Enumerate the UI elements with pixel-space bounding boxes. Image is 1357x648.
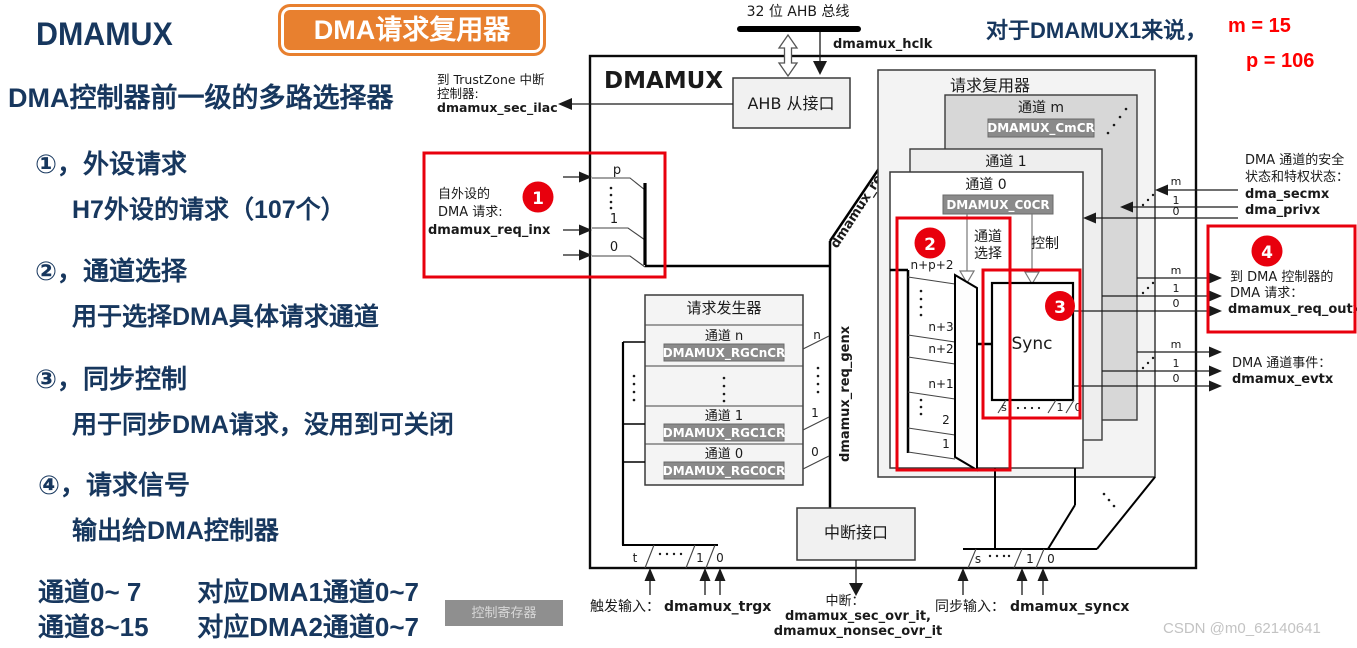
mux-tap-2: 2 [942,413,950,427]
periph-line2: DMA 请求: [438,205,503,220]
ahb-bus-bar [737,26,861,32]
left-arrow-icon [558,98,572,110]
interrupt-signal-1: dmamux_sec_ovr_it, [785,609,931,624]
channel-m-label: 通道 m [1018,100,1064,116]
ahb-bus-label: 32 位 AHB 总线 [747,4,850,20]
trustzone-signal-name: dmamux_sec_ilac [437,100,558,116]
secmx-signal-name: dma_secmx [1245,187,1330,202]
sync-signal-name: dmamux_syncx [1010,599,1129,615]
evt-m: m [1171,338,1182,351]
sync-input-label: 同步输入： [935,599,1005,615]
interrupt-signal-2: dmamux_nonsec_ovr_it [774,624,943,639]
right-arrow-icon [1209,306,1222,317]
hclk-label: dmamux_hclk [833,37,933,52]
annotation-number-1: 1 [532,189,544,209]
reg-rgc1cr: DMAMUX_RGC1CR [663,426,785,441]
trigger-input-label: 触发输入： [590,599,660,615]
gen-out-1: 1 [811,406,819,420]
channel-select-mux [955,275,977,470]
trustzone-line2: 控制器: [437,86,479,101]
up-arrow-icon [700,568,711,581]
out-0: 0 [1173,297,1180,310]
channel-1-label: 通道 1 [985,154,1026,170]
mux-input-1: 1 [610,212,618,227]
right-arrow-icon [1209,366,1222,377]
up-arrow-icon [645,568,656,581]
control-label: 控制 [1031,236,1059,252]
interrupt-label: 中断： [825,594,864,609]
mux-tap-n2: n+2 [928,342,953,356]
sync-label: Sync [1012,334,1053,354]
interrupt-if-label: 中断接口 [824,523,888,542]
out-m: m [1171,264,1182,277]
mux-input-0: 0 [610,240,618,255]
sec-0: 0 [1173,205,1180,218]
security-line1: DMA 通道的安全 [1245,152,1344,168]
trig-tap-0: 0 [716,551,724,565]
right-arrow-icon [1209,291,1222,302]
trigger-signal-name: dmamux_trgx [664,599,771,615]
req-out-line2: DMA 请求： [1230,286,1303,301]
sync-tap-1: 1 [1057,401,1064,414]
up-arrow-icon [1017,568,1028,581]
up-arrow-icon [715,568,726,581]
slide-canvas: DMAMUX DMA请求复用器 DMA控制器前一级的多路选择器 ①，外设请求 H… [0,0,1357,648]
right-arrow-icon [1209,347,1222,358]
up-arrow-icon [1038,568,1049,581]
ahb-slave-label: AHB 从接口 [747,94,834,113]
ahb-slave-interface: AHB 从接口 [733,78,850,128]
dmamux-block-title: DMAMUX [604,68,723,94]
request-generator-title: 请求发生器 [686,299,761,317]
up-arrow-icon [958,568,969,581]
trig-tap-1: 1 [696,551,704,565]
annotation-number-4: 4 [1261,243,1273,263]
reg-cmcr: DMAMUX_CmCR [987,121,1094,136]
gen-channel-0-label: 通道 0 [705,447,743,462]
trig-tap-t: t [633,551,638,565]
mux-tap-n3: n+3 [928,320,953,334]
mux-tap-npplus2: n+p+2 [911,258,954,272]
periph-signal-name: dmamux_req_inx [428,223,551,238]
sync-in-1: 1 [1026,552,1034,566]
channel-0-label: 通道 0 [965,177,1006,193]
mux-tap-n1: n+1 [928,377,953,391]
req-out-line1: 到 DMA 控制器的 [1230,269,1333,285]
channel-select-label-2: 选择 [974,246,1002,262]
evtx-signal-name: dmamux_evtx [1232,372,1334,387]
out-1: 1 [1173,282,1180,295]
reg-c0cr: DMAMUX_C0CR [946,198,1049,213]
annotation-number-3: 3 [1054,298,1066,318]
periph-line1: 自外设的 [438,186,490,202]
gen-out-n: n [813,328,821,342]
gen-channel-n-label: 通道 n [705,329,743,344]
mux-input-p: p [613,163,621,178]
mux-tap-1: 1 [942,437,950,451]
request-mux-title: 请求复用器 [950,76,1030,95]
sync-tap-s: s [1001,401,1007,414]
request-multiplexer: 请求复用器 通道 m DMAMUX_CmCR 通道 1 通道 0 DMAMUX_… [878,70,1155,477]
annotation-number-2: 2 [924,235,936,255]
reg-rgc0cr: DMAMUX_RGC0CR [663,464,785,479]
channel-select-label-1: 通道 [974,229,1002,245]
gen-channel-1-label: 通道 1 [705,409,743,424]
req-genx-signal-name: dmamux_req_genx [838,325,853,462]
right-arrow-icon [1209,381,1222,392]
sec-m: m [1171,175,1182,188]
event-line1: DMA 通道事件： [1232,356,1331,371]
sync-in-0: 0 [1047,552,1055,566]
req-outx-signal-name: dmamux_req_outx [1228,302,1357,317]
evt-1: 1 [1173,357,1180,370]
gen-out-0: 0 [811,445,819,459]
dmamux-block-diagram: DMAMUX 32 位 AHB 总线 dmamux_hclk AHB 从接口 到… [0,0,1357,648]
sync-in-s: s [975,552,981,566]
security-line2: 状态和特权状态： [1245,169,1349,185]
right-arrow-icon [1209,273,1222,284]
reg-rgcncr: DMAMUX_RGCnCR [663,346,786,361]
privx-signal-name: dma_privx [1245,203,1321,218]
trustzone-line1: 到 TrustZone 中断 [437,72,545,87]
evt-0: 0 [1173,372,1180,385]
